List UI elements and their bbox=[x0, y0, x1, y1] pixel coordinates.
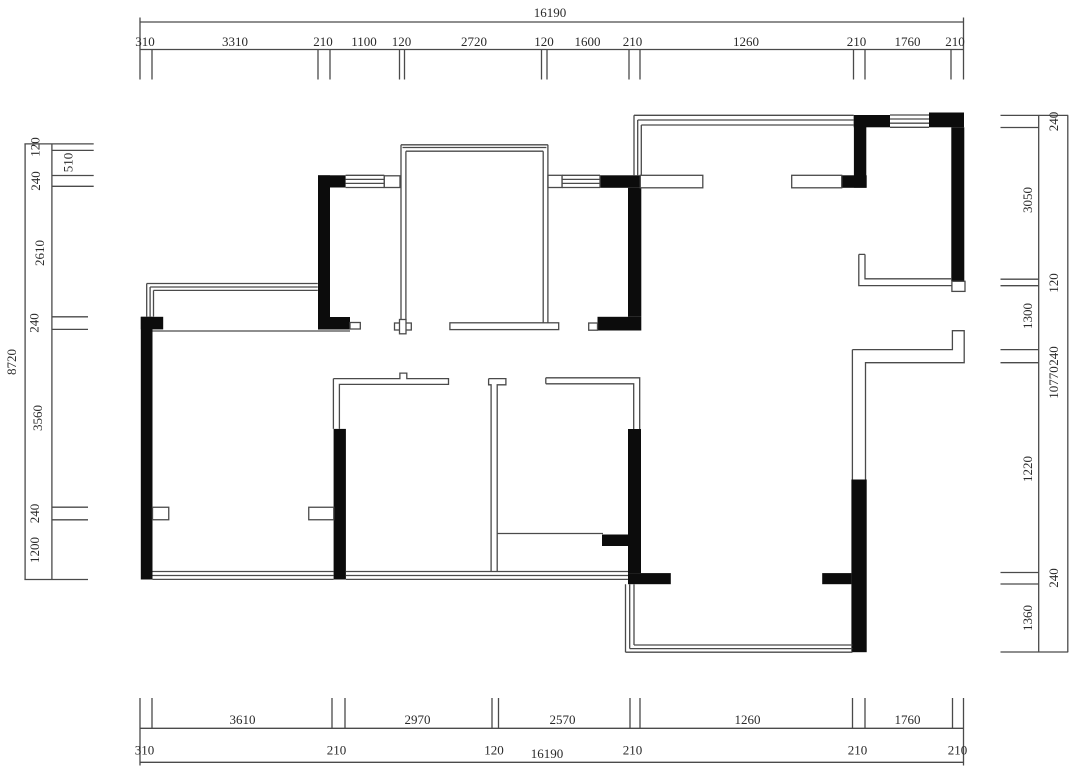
svg-text:1220: 1220 bbox=[1020, 456, 1035, 482]
svg-text:210: 210 bbox=[623, 743, 643, 758]
svg-text:240: 240 bbox=[28, 171, 43, 191]
svg-text:1760: 1760 bbox=[895, 34, 921, 49]
svg-text:16190: 16190 bbox=[534, 5, 567, 20]
svg-text:120: 120 bbox=[1046, 273, 1061, 293]
svg-text:210: 210 bbox=[848, 743, 868, 758]
svg-text:2610: 2610 bbox=[32, 240, 47, 266]
svg-text:1360: 1360 bbox=[1020, 605, 1035, 631]
svg-text:1600: 1600 bbox=[575, 34, 601, 49]
svg-text:16190: 16190 bbox=[531, 746, 564, 761]
svg-text:240: 240 bbox=[27, 504, 42, 524]
svg-text:2970: 2970 bbox=[405, 712, 431, 727]
svg-text:120: 120 bbox=[28, 137, 43, 157]
svg-text:210: 210 bbox=[313, 34, 333, 49]
svg-text:3610: 3610 bbox=[230, 712, 256, 727]
svg-text:2570: 2570 bbox=[550, 712, 576, 727]
svg-text:1100: 1100 bbox=[351, 34, 377, 49]
svg-text:310: 310 bbox=[135, 743, 155, 758]
svg-text:240: 240 bbox=[1046, 346, 1061, 366]
svg-text:1300: 1300 bbox=[1020, 303, 1035, 329]
svg-text:1260: 1260 bbox=[733, 34, 759, 49]
svg-text:310: 310 bbox=[135, 34, 155, 49]
svg-text:240: 240 bbox=[27, 313, 42, 333]
svg-text:210: 210 bbox=[327, 743, 347, 758]
svg-text:210: 210 bbox=[948, 743, 968, 758]
svg-text:240: 240 bbox=[1046, 112, 1061, 132]
svg-text:210: 210 bbox=[847, 34, 867, 49]
svg-text:3310: 3310 bbox=[222, 34, 248, 49]
svg-text:210: 210 bbox=[945, 34, 965, 49]
svg-text:210: 210 bbox=[623, 34, 643, 49]
svg-text:3560: 3560 bbox=[30, 405, 45, 431]
svg-text:1260: 1260 bbox=[735, 712, 761, 727]
svg-text:3050: 3050 bbox=[1020, 187, 1035, 213]
svg-text:120: 120 bbox=[484, 743, 504, 758]
svg-text:8720: 8720 bbox=[4, 349, 19, 375]
svg-text:120: 120 bbox=[534, 34, 554, 49]
svg-text:120: 120 bbox=[392, 34, 412, 49]
svg-text:1200: 1200 bbox=[27, 537, 42, 563]
svg-text:10770: 10770 bbox=[1046, 366, 1061, 399]
svg-text:240: 240 bbox=[1046, 568, 1061, 588]
svg-text:2720: 2720 bbox=[461, 34, 487, 49]
svg-text:1760: 1760 bbox=[895, 712, 921, 727]
svg-text:510: 510 bbox=[60, 153, 75, 173]
